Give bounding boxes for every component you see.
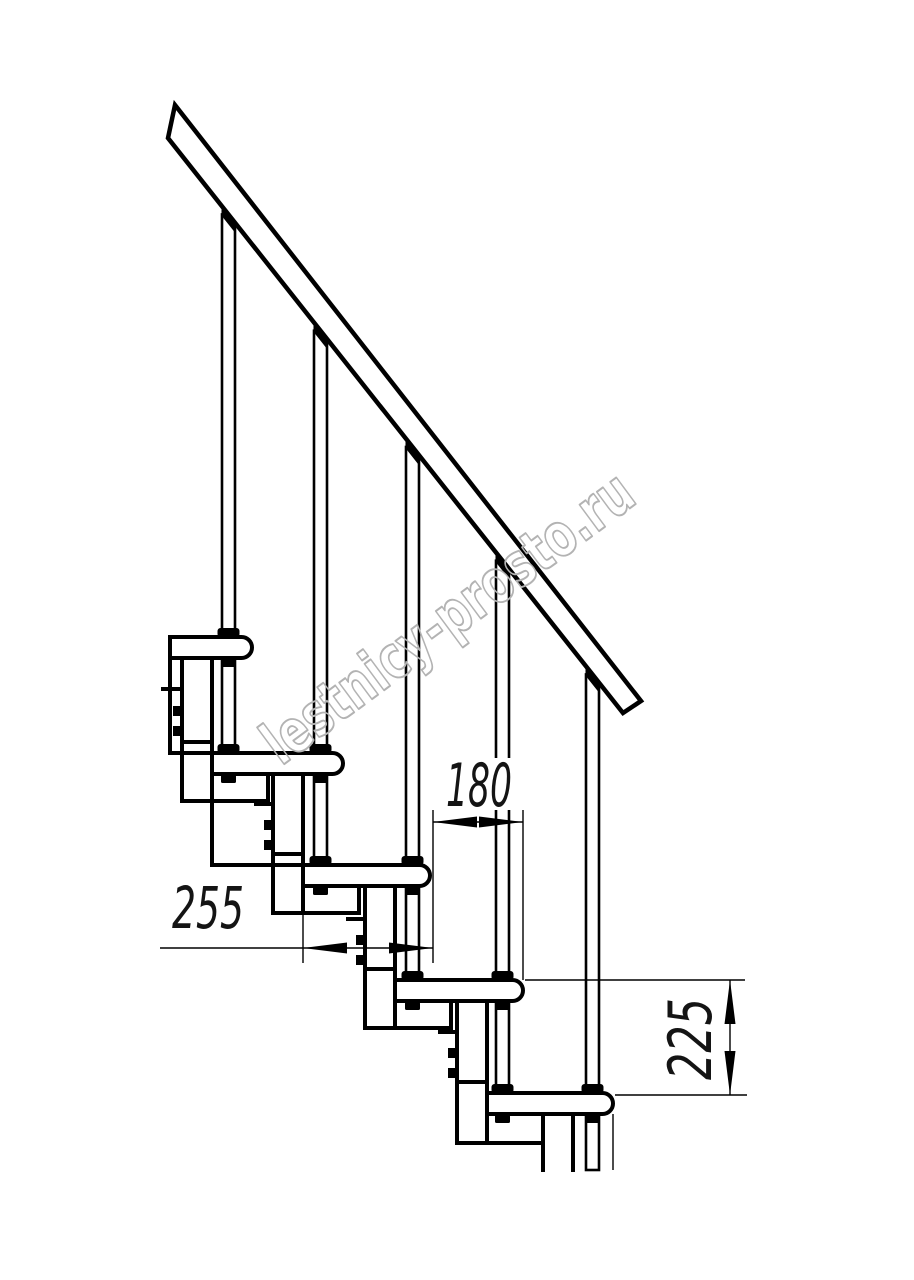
rod-nut: [313, 775, 328, 783]
tread: [487, 1093, 613, 1114]
rod-foot-flange: [582, 1084, 604, 1093]
rod-nut: [221, 775, 236, 783]
module-clip: [448, 1068, 457, 1078]
module-clip: [356, 935, 365, 945]
module-clip: [173, 726, 182, 736]
module-clip: [264, 820, 273, 830]
baluster-rod-lower: [496, 1002, 509, 1089]
module-clip: [356, 955, 365, 965]
rod-foot-flange: [492, 971, 514, 980]
rod-nut: [495, 1002, 510, 1010]
rod-foot-flange: [218, 628, 240, 637]
baluster-rod-lower: [586, 1115, 599, 1170]
tread: [395, 980, 523, 1001]
tread: [303, 865, 430, 886]
baluster-rod-lower: [314, 775, 327, 861]
rod-foot-flange: [402, 856, 424, 865]
rod-nut: [495, 1115, 510, 1123]
dimension-label-depth-255: 255: [172, 874, 244, 942]
rod-nut: [585, 1115, 600, 1123]
rod-nut: [405, 887, 420, 895]
baluster-rod-lower: [406, 887, 419, 976]
dimension-arrow-icon: [303, 943, 347, 954]
module-clip: [448, 1048, 457, 1058]
rod-foot-flange: [492, 1084, 514, 1093]
dimension-label-run-180: 180: [446, 751, 512, 821]
baluster-rod: [222, 214, 235, 633]
rod-nut: [313, 887, 328, 895]
dimension-arrow-icon: [725, 980, 736, 1024]
baluster-rod: [586, 674, 599, 1089]
rod-foot-flange: [218, 744, 240, 753]
drawing-canvas: 180 255 225 lestnicy-prosto.ru: [0, 0, 914, 1280]
rod-nut: [221, 659, 236, 667]
staircase-technical-drawing: 180 255 225 lestnicy-prosto.ru: [0, 0, 914, 1280]
baluster-rod-lower: [222, 659, 235, 749]
tread: [170, 637, 252, 658]
rod-foot-flange: [310, 856, 332, 865]
dimension-label-rise-225: 225: [656, 998, 726, 1080]
dimension-arrow-icon: [725, 1051, 736, 1095]
module-clip: [173, 706, 182, 716]
rod-nut: [405, 1002, 420, 1010]
rod-foot-flange: [402, 971, 424, 980]
module-clip: [264, 840, 273, 850]
